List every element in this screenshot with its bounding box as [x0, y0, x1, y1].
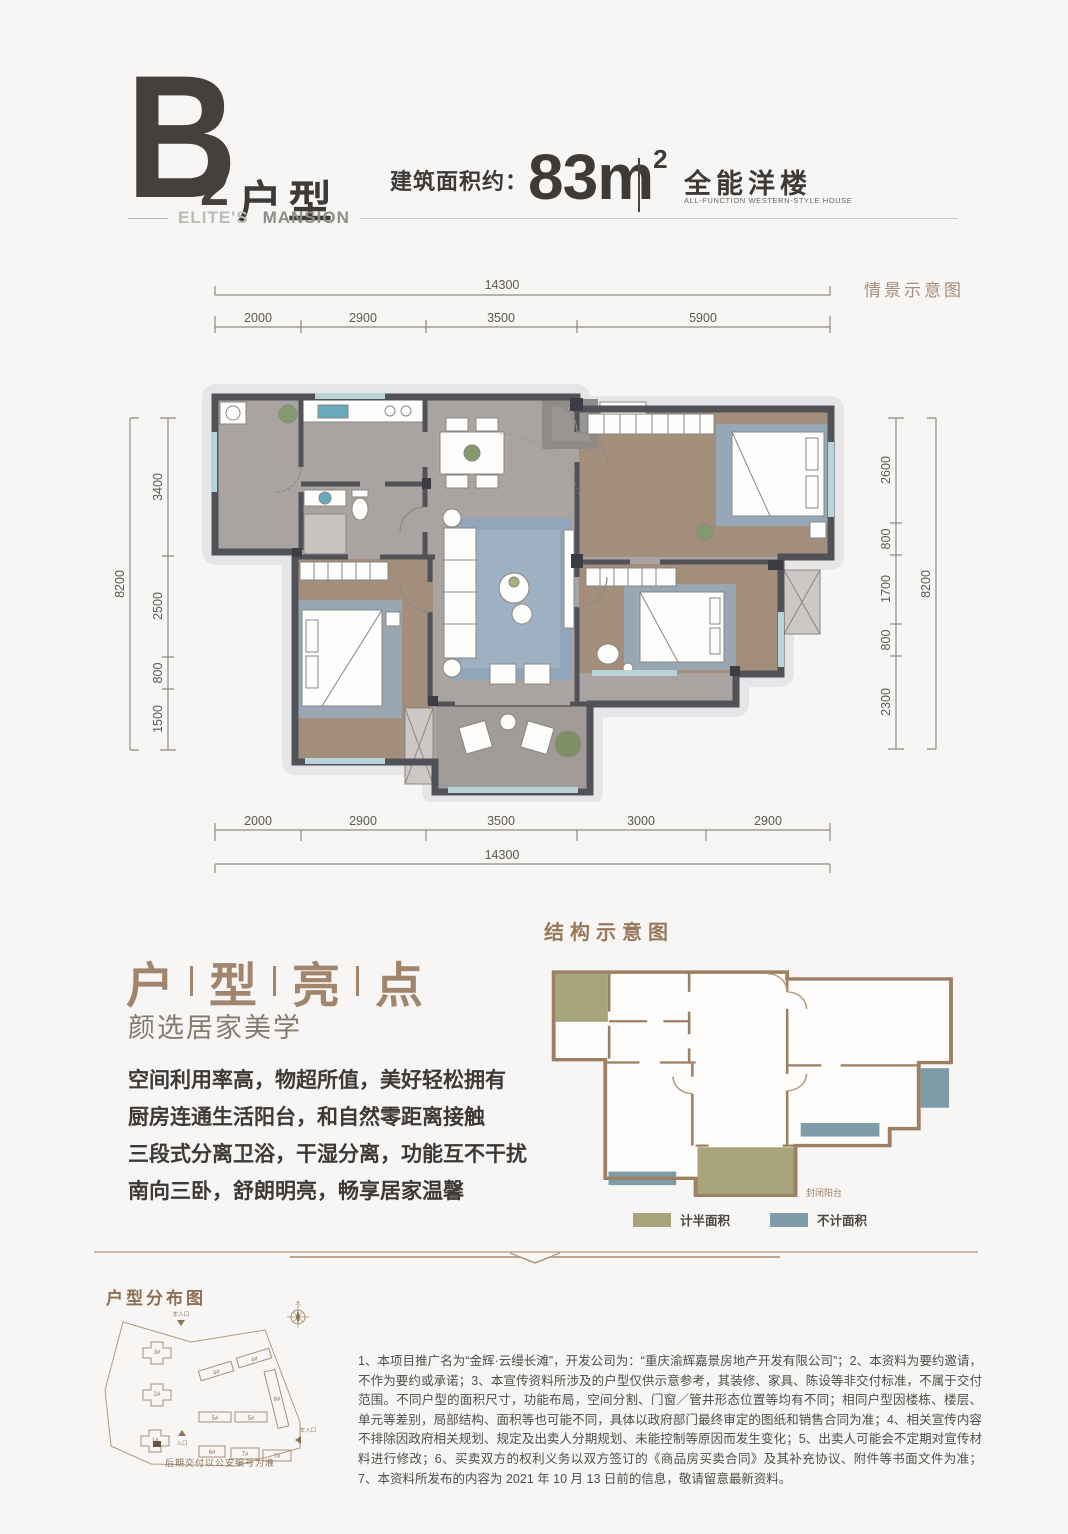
area-group: 建筑面积约： 83m 2 — [390, 150, 668, 204]
dim-top-seg-3: 5900 — [689, 311, 717, 325]
dim-left-seg-0: 3400 — [151, 473, 165, 501]
washer — [220, 402, 246, 424]
legend-swatch-olive — [633, 1213, 671, 1227]
dim-right-seg-0: 2600 — [879, 456, 893, 484]
dim-left-seg-1: 2500 — [151, 592, 165, 620]
toilet — [352, 498, 368, 520]
entry-right-label: 车入口 — [300, 1426, 317, 1434]
building-label: 8# — [274, 1397, 281, 1403]
entry-left-arrow — [178, 1430, 186, 1436]
structure-diagram: 封闭阳台 — [538, 944, 973, 1206]
dim-top-seg-2: 3500 — [487, 311, 515, 325]
legend-counted-half: 计半面积 — [633, 1210, 730, 1229]
compass-icon — [287, 1306, 309, 1328]
site-plan: 3# 2# 1# 4# 4# 5# 5# 8# 6# 7# 7# 北 车入口 入… — [95, 1300, 345, 1475]
floor-plan — [200, 372, 860, 802]
entry-top-label: 车入口 — [173, 1310, 190, 1318]
dim-top-seg-0: 2000 — [244, 311, 272, 325]
olive-area-laundry — [556, 974, 608, 1022]
dim-left-seg-3: 1500 — [151, 705, 165, 733]
dim-bottom-seg-0: 2000 — [244, 814, 272, 828]
blue-area-right-bay — [921, 1068, 949, 1108]
bedroom2-chair — [597, 644, 619, 664]
area-value: 83m — [528, 150, 653, 204]
ottoman — [490, 664, 516, 684]
dim-left-seg-2: 800 — [151, 663, 165, 684]
building-label: 2# — [154, 1392, 161, 1398]
dim-right-seg-4: 2300 — [879, 688, 893, 716]
section-divider — [92, 1246, 982, 1266]
site-boundary — [105, 1322, 300, 1466]
brand-name-bold: MANSION — [263, 208, 350, 228]
bedroom3-nightstand — [386, 612, 400, 626]
legend-not-counted: 不计面积 — [770, 1210, 867, 1229]
legend-label: 不计面积 — [817, 1210, 867, 1229]
distribution-caption: 后期交付以公安编号为准 — [90, 1456, 350, 1469]
unit-location-marker — [153, 1441, 161, 1447]
highlights-paragraph: 空间利用率高，物超所值，美好轻松拥有 厨房连通生活阳台，和自然零距离接触 三段式… — [128, 1062, 548, 1210]
building-label: 4# — [213, 1369, 222, 1377]
area-superscript: 2 — [653, 144, 667, 175]
blue-area-bedroom2-bay — [801, 1123, 880, 1137]
bedroom3-wardrobe — [300, 562, 388, 580]
highlights-subtitle: 颜选居家美学 — [128, 1006, 302, 1045]
dim-left-total: 8200 — [113, 570, 127, 598]
highlight-line: 三段式分离卫浴，干湿分离，功能互不干扰 — [128, 1136, 548, 1173]
dim-right-seg-2: 1700 — [879, 575, 893, 603]
entry-top-arrow — [177, 1320, 185, 1326]
brand-row: ELITE'S MANSION — [128, 208, 958, 228]
poster-page: B 2 户型 建筑面积约： 83m 2 全能洋楼 ALL-FUNCTION WE… — [0, 0, 1068, 1534]
shower — [304, 514, 346, 554]
highlights-char: 点 — [375, 946, 423, 1016]
building-label: 4# — [251, 1356, 260, 1364]
disclaimer-text: 1、本项目推广名为“金辉·云缦长滩”，开发公司为：“重庆渝辉嘉景房地产开发有限公… — [358, 1352, 982, 1489]
structure-balcony-label: 封闭阳台 — [806, 1187, 842, 1198]
dim-right-seg-1: 800 — [879, 529, 893, 550]
laundry-plant — [279, 405, 297, 423]
dim-top-total: 14300 — [485, 278, 520, 292]
legend-swatch-blue — [770, 1213, 808, 1227]
master-wardrobe — [588, 414, 714, 434]
building-label: 3# — [154, 1350, 161, 1356]
brand-name-light: ELITE'S — [178, 208, 249, 228]
balcony-plant — [555, 731, 581, 757]
header-divider — [638, 158, 640, 212]
highlight-line: 空间利用率高，物超所值，美好轻松拥有 — [128, 1062, 548, 1099]
toilet-tank — [352, 490, 368, 497]
area-label: 建筑面积约： — [390, 164, 528, 204]
dim-right-total: 8200 — [919, 570, 933, 598]
product-type-en: ALL-FUNCTION WESTERN-STYLE HOUSE — [684, 196, 852, 205]
dim-bottom-seg-3: 3000 — [627, 814, 655, 828]
building-label: 5# — [212, 1416, 219, 1422]
dim-bottom-total: 14300 — [485, 848, 520, 862]
kitchen-sink — [318, 405, 348, 418]
entry-left-label: 入口 — [176, 1440, 187, 1447]
brand-rule — [360, 218, 958, 219]
highlight-line: 厨房连通生活阳台，和自然零距离接触 — [128, 1099, 548, 1136]
dim-right-seg-3: 800 — [879, 630, 893, 651]
structure-title: 结构示意图 — [544, 916, 674, 945]
compass-north-label: 北 — [295, 1300, 300, 1307]
building-label: 5# — [248, 1416, 255, 1422]
brand-dash — [128, 218, 168, 219]
master-nightstand — [810, 522, 826, 538]
entry-right-arrow — [295, 1436, 301, 1444]
legend-label: 计半面积 — [680, 1210, 730, 1229]
dim-bottom-seg-4: 2900 — [754, 814, 782, 828]
dim-bottom-seg-1: 2900 — [349, 814, 377, 828]
olive-area-balcony — [698, 1147, 795, 1193]
dim-bottom-seg-2: 3500 — [487, 814, 515, 828]
highlight-line: 南向三卧，舒朗明亮，畅享居家温馨 — [128, 1173, 548, 1210]
tv-console — [564, 530, 574, 628]
dim-top-seg-1: 2900 — [349, 311, 377, 325]
floor-lamp — [443, 509, 461, 527]
ottoman — [524, 664, 550, 684]
sofa — [444, 528, 476, 658]
